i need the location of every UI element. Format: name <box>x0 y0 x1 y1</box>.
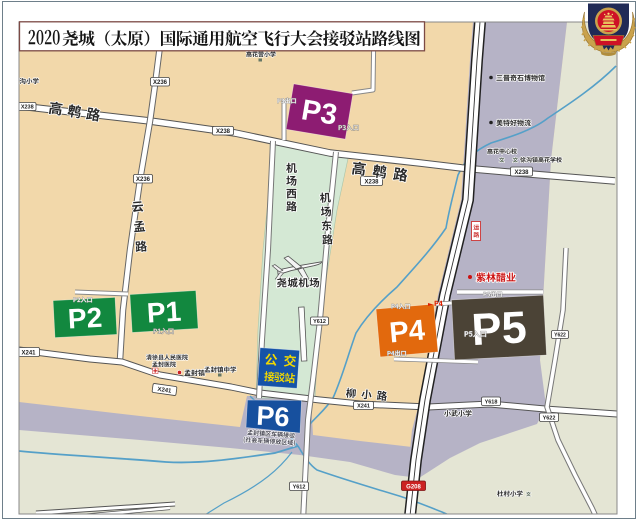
svg-text:Y622: Y622 <box>543 415 556 421</box>
svg-text:Y618: Y618 <box>485 399 498 405</box>
svg-text:P5: P5 <box>470 301 528 355</box>
svg-text:X238: X238 <box>21 104 34 110</box>
svg-text:X241: X241 <box>357 403 370 409</box>
svg-text:X241: X241 <box>21 350 36 356</box>
svg-text:X236: X236 <box>136 177 151 183</box>
svg-text:P1: P1 <box>146 296 182 329</box>
svg-text:X236: X236 <box>153 80 168 86</box>
svg-text:Y612: Y612 <box>293 484 306 490</box>
svg-text:P3: P3 <box>299 94 339 131</box>
svg-text:X238: X238 <box>514 170 529 176</box>
svg-text:Y622: Y622 <box>554 332 566 338</box>
svg-text:G208: G208 <box>406 484 421 490</box>
svg-text:P4: P4 <box>388 314 426 349</box>
svg-text:X238: X238 <box>216 129 231 135</box>
svg-text:P6: P6 <box>256 401 291 433</box>
svg-text:X238: X238 <box>364 179 379 185</box>
svg-text:Y612: Y612 <box>313 319 326 325</box>
svg-text:P2: P2 <box>67 302 103 335</box>
